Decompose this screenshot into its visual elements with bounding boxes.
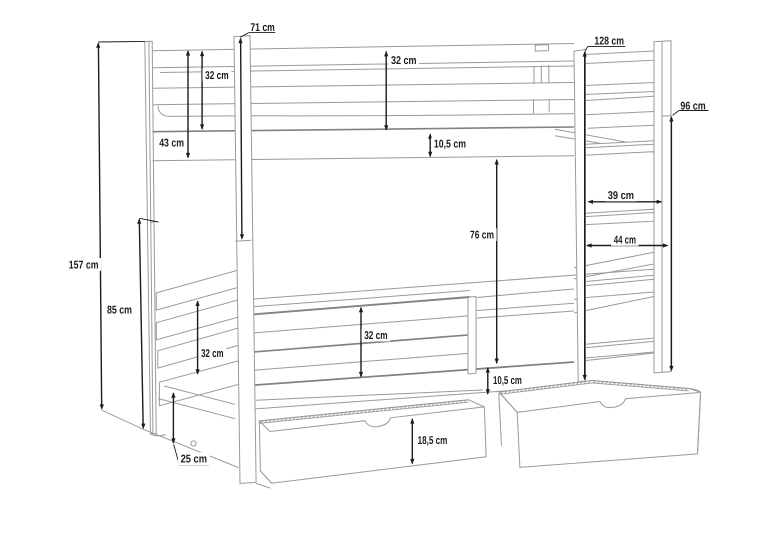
svg-text:32 cm: 32 cm: [391, 55, 417, 67]
svg-text:44 cm: 44 cm: [614, 234, 636, 246]
svg-text:10,5 cm: 10,5 cm: [493, 375, 522, 387]
svg-text:32 cm: 32 cm: [364, 330, 387, 342]
svg-text:43 cm: 43 cm: [159, 138, 184, 150]
svg-text:25 cm: 25 cm: [181, 454, 207, 466]
svg-text:128 cm: 128 cm: [594, 35, 624, 47]
svg-text:85 cm: 85 cm: [107, 305, 132, 317]
svg-text:18,5 cm: 18,5 cm: [418, 435, 448, 447]
svg-text:10,5 cm: 10,5 cm: [434, 139, 466, 151]
svg-text:157 cm: 157 cm: [69, 259, 99, 271]
svg-text:39 cm: 39 cm: [608, 190, 634, 202]
svg-text:32 cm: 32 cm: [201, 348, 224, 360]
svg-text:76 cm: 76 cm: [470, 230, 494, 242]
svg-text:32 cm: 32 cm: [205, 70, 229, 82]
